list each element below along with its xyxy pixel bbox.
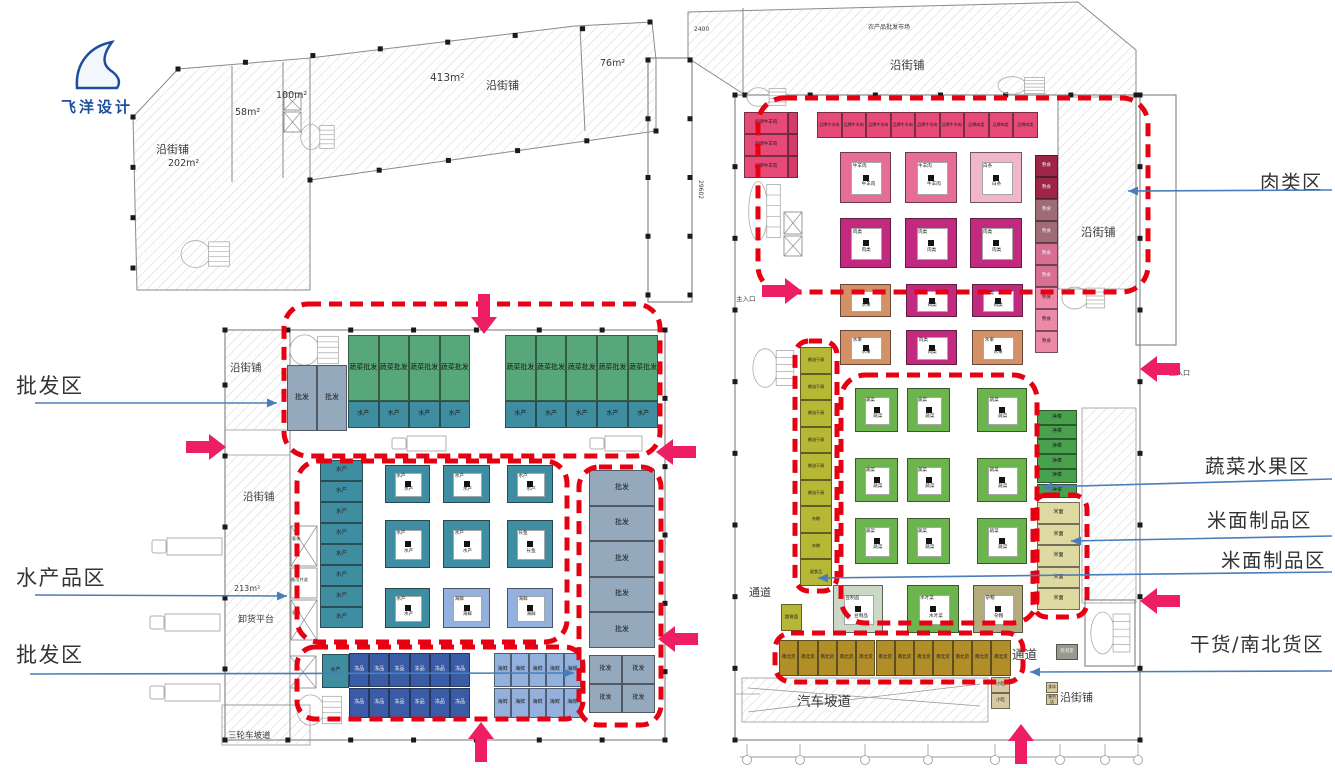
leader-arrowhead-icon bbox=[1128, 187, 1138, 196]
flow-arrow-icon bbox=[1008, 724, 1034, 764]
logo-text: 飞洋设计 bbox=[52, 96, 142, 117]
leader-arrowhead-icon bbox=[267, 399, 277, 408]
leader-arrowhead-icon bbox=[564, 669, 574, 678]
zone-outline-dashed bbox=[297, 647, 583, 719]
flow-arrow-icon bbox=[468, 722, 494, 762]
leader-line bbox=[1030, 671, 1332, 672]
zone-outline-dashed bbox=[775, 633, 1023, 682]
flow-arrow-icon bbox=[186, 434, 226, 460]
logo: 飞洋设计 bbox=[52, 36, 142, 117]
leader-line bbox=[1128, 190, 1332, 191]
flow-arrow-icon bbox=[471, 294, 497, 334]
logo-fin-icon bbox=[65, 36, 129, 94]
flow-arrow-icon bbox=[762, 278, 802, 304]
leader-line bbox=[818, 572, 1332, 578]
leader-line bbox=[35, 595, 287, 596]
leader-line bbox=[1071, 536, 1332, 541]
zone-outline-dashed bbox=[1033, 495, 1087, 617]
leader-arrowhead-icon bbox=[818, 574, 828, 583]
leader-line bbox=[30, 673, 574, 674]
zone-outline-dashed bbox=[841, 375, 1037, 623]
zone-outline-dashed bbox=[284, 304, 660, 456]
zone-outline-dashed bbox=[579, 467, 661, 725]
zone-outline-dashed bbox=[758, 98, 1148, 292]
zone-outline-dashed bbox=[297, 461, 567, 642]
floor-plan-canvas: 批发批发蔬菜批发蔬菜批发蔬菜批发蔬菜批发水产水产水产水产蔬菜批发蔬菜批发蔬菜批发… bbox=[0, 0, 1335, 768]
leader-arrowhead-icon bbox=[277, 592, 287, 601]
annotation-layer bbox=[0, 0, 1335, 768]
leader-arrowhead-icon bbox=[1030, 668, 1040, 677]
flow-arrow-icon bbox=[656, 439, 696, 465]
flow-arrow-icon bbox=[658, 626, 698, 652]
zone-outline-dashed bbox=[795, 341, 837, 591]
leader-line bbox=[1042, 479, 1332, 487]
leader-arrowhead-icon bbox=[1071, 537, 1081, 546]
leader-arrowhead-icon bbox=[1042, 483, 1052, 492]
flow-arrow-icon bbox=[1140, 588, 1180, 614]
flow-arrow-icon bbox=[1140, 356, 1180, 382]
